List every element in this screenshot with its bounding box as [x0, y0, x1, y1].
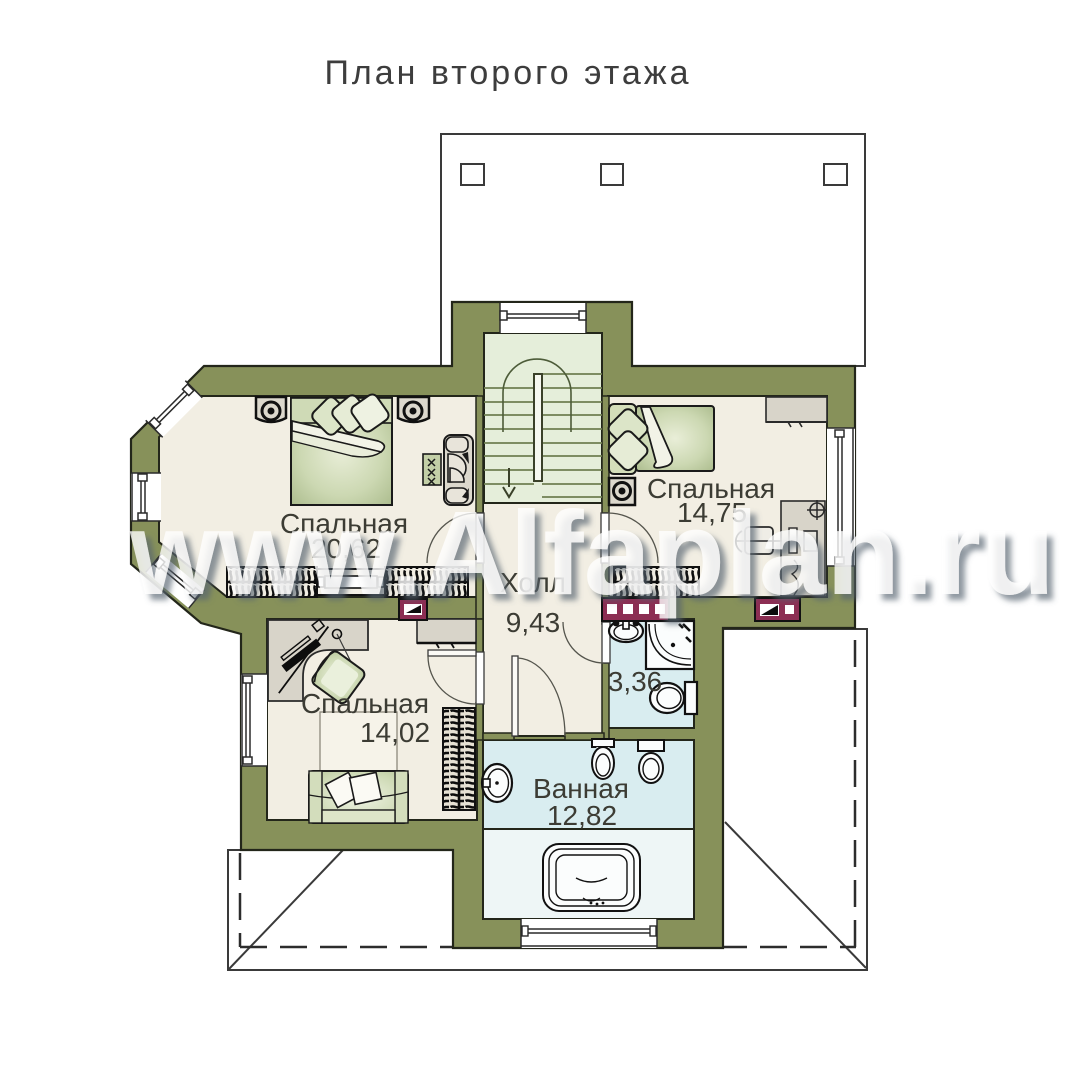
svg-text:План второго этажа: План второго этажа — [324, 54, 691, 92]
svg-text:Alfaplan.ru: Alfaplan.ru — [422, 487, 1055, 620]
svg-text:Спальная: Спальная — [301, 688, 429, 719]
svg-text:3,36: 3,36 — [608, 666, 663, 697]
svg-text:www.: www. — [129, 487, 422, 620]
svg-text:14,02: 14,02 — [360, 717, 430, 748]
svg-text:12,82: 12,82 — [547, 800, 617, 831]
